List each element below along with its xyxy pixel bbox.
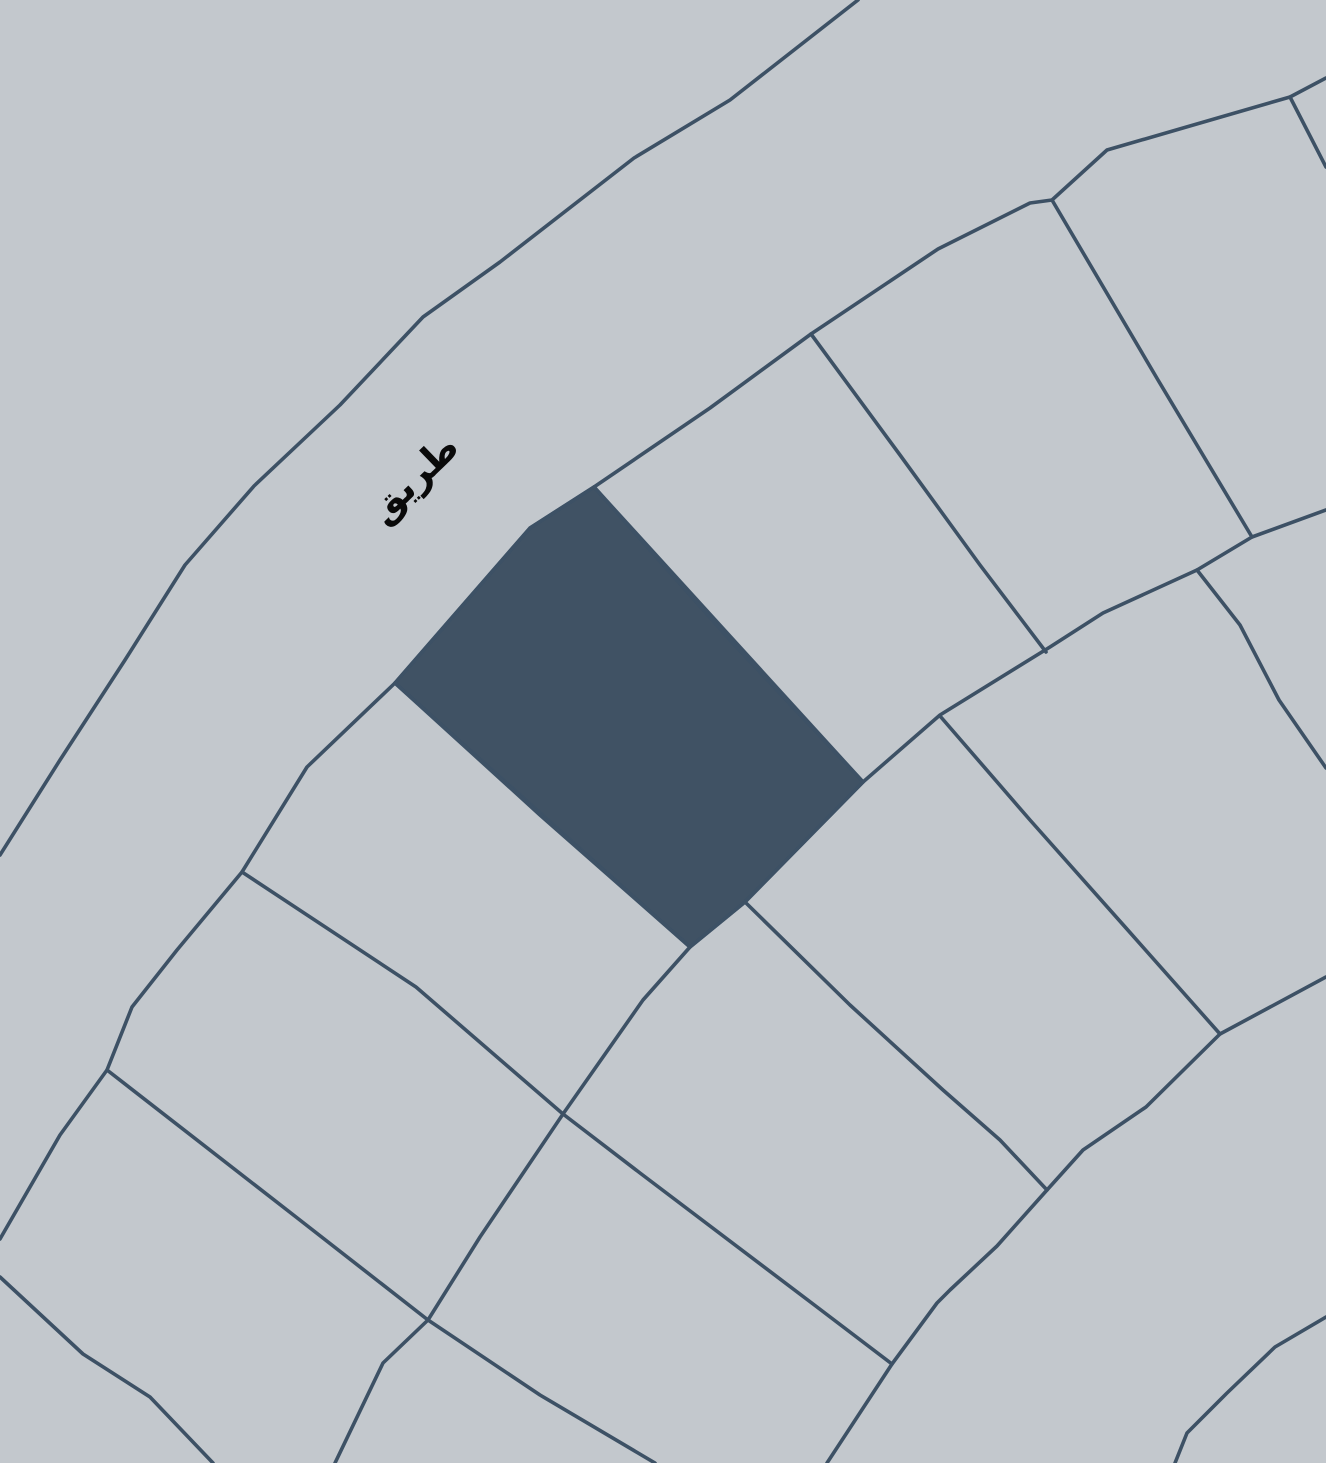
map-viewport[interactable]: طريق [0,0,1326,1463]
parcel-map-canvas[interactable]: طريق [0,0,1326,1463]
